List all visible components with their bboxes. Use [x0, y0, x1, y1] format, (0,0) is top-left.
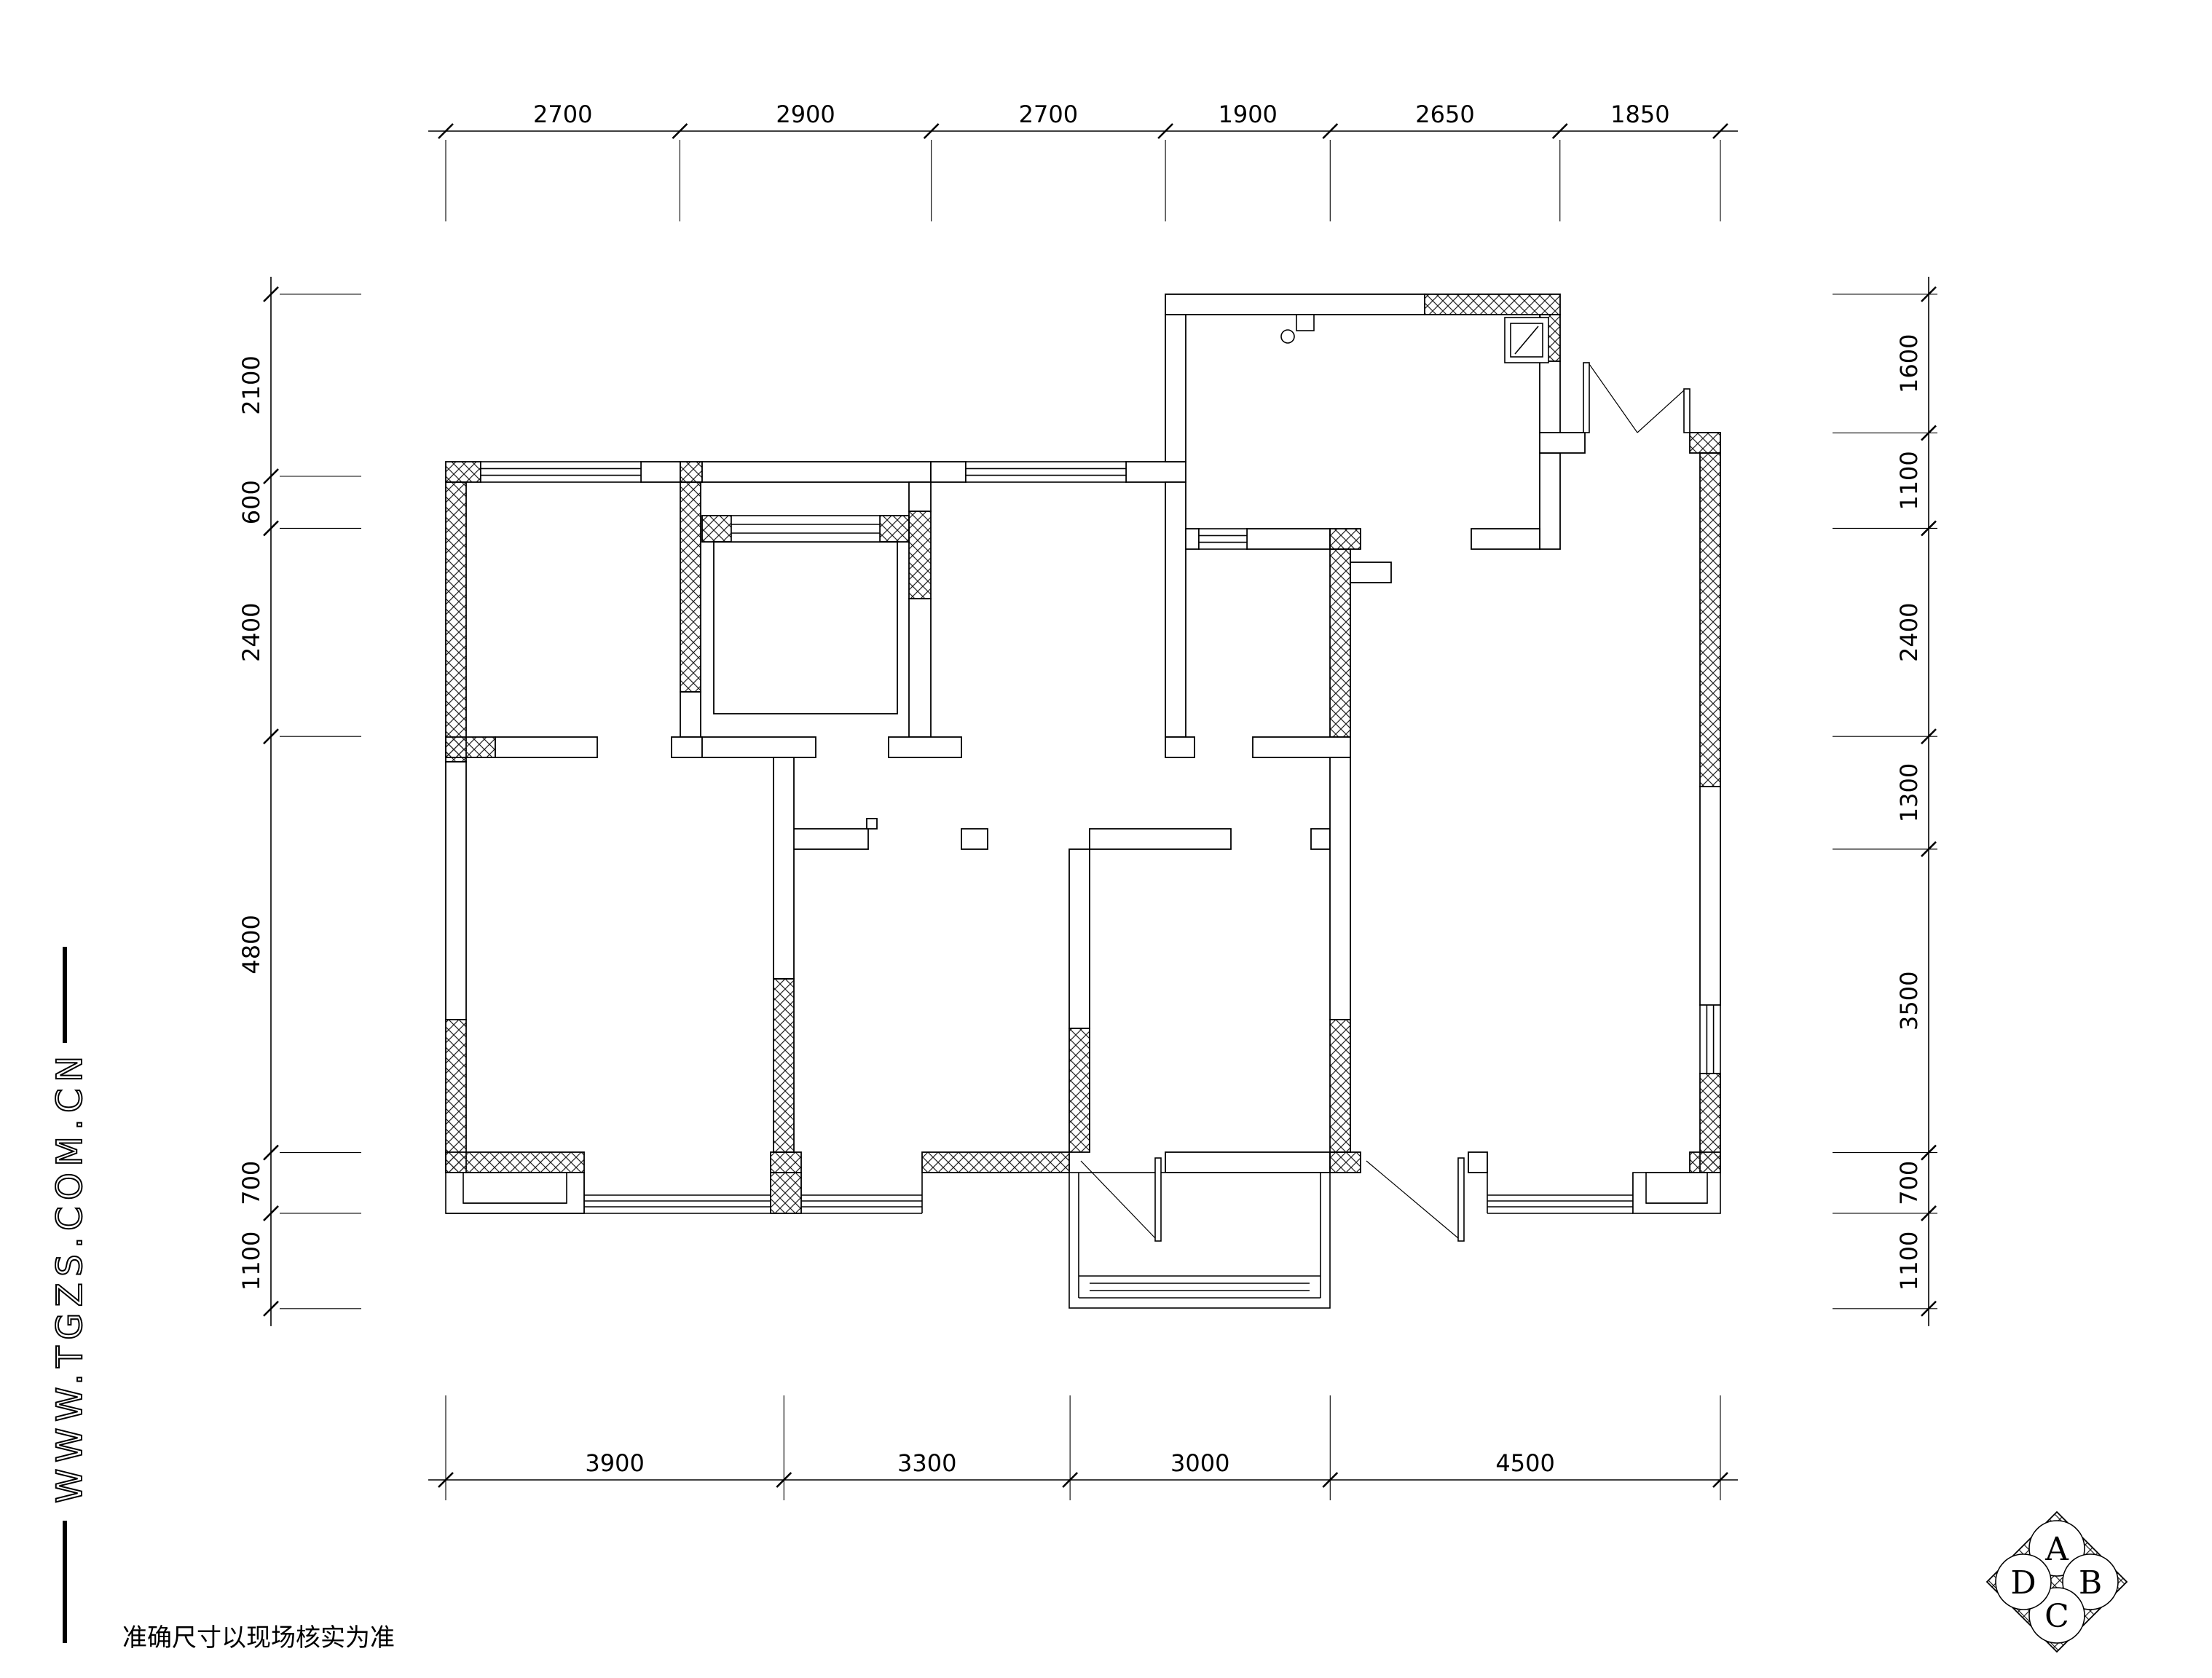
wall-plain [446, 762, 466, 1020]
wall-hatched [1330, 529, 1361, 549]
dim-label: 1300 [1895, 763, 1923, 822]
wall-plain [1069, 849, 1090, 1028]
wall-hatched [680, 482, 701, 692]
wall-hatched [702, 516, 731, 542]
dim-label: 600 [237, 480, 265, 524]
wall-hatched [1069, 1028, 1090, 1152]
wall-plain [1540, 433, 1585, 453]
dim-label: 1100 [1895, 1232, 1923, 1291]
ac-platform-right [1633, 1173, 1720, 1213]
wall-plain [1540, 361, 1560, 433]
window [481, 462, 641, 482]
window [966, 462, 1126, 482]
disclaimer-note: 准确尺寸以现场核实为准 [122, 1623, 395, 1653]
dim-label: 1850 [1610, 101, 1669, 128]
dim-label: 2700 [1019, 101, 1078, 128]
wall-hatched [774, 979, 794, 1152]
balcony [1069, 1173, 1330, 1308]
wall-hatched [1690, 433, 1720, 453]
wall-hatched [1330, 549, 1350, 737]
wall-plain [909, 599, 931, 737]
wall-notch [1296, 315, 1314, 331]
wall-plain [889, 737, 961, 757]
wall-hatched [1330, 1152, 1361, 1173]
logo-letter-b: B [2079, 1564, 2102, 1602]
wall-plain [1247, 529, 1330, 549]
wall-plain [1330, 757, 1350, 1020]
dim-label: 1900 [1218, 101, 1277, 128]
wall-hatched [446, 737, 495, 757]
floor-plan-drawing: 2700290027001900265018503900330030004500… [0, 0, 2212, 1678]
wall-plain [1253, 737, 1350, 757]
wall-hatched [771, 1173, 801, 1213]
logo-letter-d: D [2010, 1564, 2036, 1602]
wall-hatched [446, 462, 481, 482]
logo-letter-a: A [2044, 1531, 2069, 1568]
sink-icon [1505, 318, 1548, 363]
watermark-dash [63, 947, 67, 1043]
dim-label: 2900 [776, 101, 835, 128]
wall-stub [1350, 562, 1391, 583]
cad-canvas: 2700290027001900265018503900330030004500… [0, 0, 2212, 1678]
wall-plain [1090, 829, 1231, 849]
dim-label: 2100 [237, 355, 265, 414]
wall-plain [1540, 453, 1560, 549]
wall-plain [680, 692, 701, 737]
wall-plain [1468, 1152, 1487, 1173]
dim-label: 4500 [1495, 1449, 1554, 1477]
dim-label: 3900 [585, 1449, 644, 1477]
dim-label: 1100 [237, 1232, 265, 1291]
dim-label: 700 [1895, 1161, 1923, 1205]
wall-plain [1165, 482, 1186, 737]
window-right-wall [1700, 1005, 1720, 1074]
dim-label: 2400 [237, 603, 265, 662]
wall-plain [672, 737, 702, 757]
wall-hatched [1690, 1152, 1720, 1173]
logo-letter-c: C [2044, 1598, 2069, 1635]
dim-label: 2700 [533, 101, 592, 128]
wall-hatched [1700, 453, 1720, 787]
wall-plain [702, 737, 816, 757]
dim-label: 3300 [897, 1449, 956, 1477]
sliding-door [731, 516, 880, 542]
dim-label: 1600 [1895, 334, 1923, 393]
wall-plain [774, 757, 794, 979]
wall-hatched [922, 1152, 1069, 1173]
window [1199, 529, 1247, 549]
wall-hatched [880, 516, 909, 542]
wall-hatched [771, 1152, 801, 1173]
wall-plain [931, 462, 966, 482]
wall-hatched [680, 462, 702, 482]
dim-label: 3500 [1895, 972, 1923, 1031]
wall-plain [702, 462, 931, 482]
wall-plain [1471, 529, 1540, 549]
wall-plain [1186, 529, 1199, 549]
door-jamb [867, 819, 877, 829]
ac-platform-left [446, 1173, 584, 1213]
wall-plain [1165, 737, 1194, 757]
wall-plain [1165, 294, 1425, 315]
wall-hatched [1425, 294, 1560, 315]
wall-plain [909, 482, 931, 511]
wall-plain [1165, 1152, 1330, 1173]
wall-plain [1126, 462, 1186, 482]
wall-hatched [1330, 1020, 1350, 1152]
wall-hatched [909, 511, 931, 599]
wall-hatched [446, 1020, 466, 1173]
dim-label: 3000 [1170, 1449, 1229, 1477]
wall-plain [961, 829, 988, 849]
wall-plain [1165, 315, 1186, 462]
dim-label: 1100 [1895, 451, 1923, 510]
wall-plain [495, 737, 597, 757]
watermark-dash [63, 1521, 67, 1643]
wall-hatched [446, 1152, 584, 1173]
dim-label: 2400 [1895, 603, 1923, 662]
dim-label: 700 [237, 1161, 265, 1205]
wall-hatched [446, 482, 466, 762]
wall-plain [1311, 829, 1330, 849]
dim-label: 4800 [237, 915, 265, 974]
wall-plain [641, 462, 680, 482]
dim-label: 2650 [1415, 101, 1474, 128]
wall-plain [1700, 787, 1720, 1005]
